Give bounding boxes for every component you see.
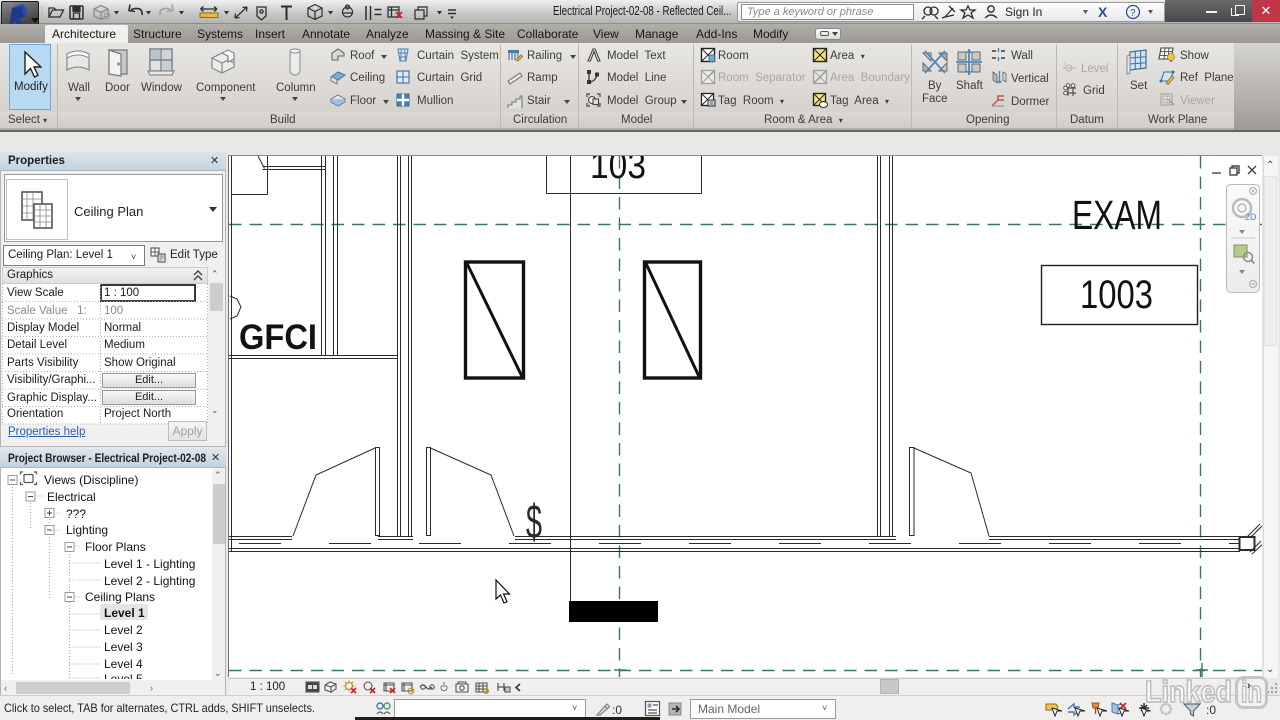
svg-text:?: ? (1130, 8, 1136, 19)
svg-text:$: $ (526, 496, 542, 549)
svg-text:103: 103 (590, 156, 646, 187)
svg-text:in: in (1241, 676, 1262, 709)
svg-text:GFCI: GFCI (239, 318, 317, 357)
svg-text:2D: 2D (1245, 212, 1257, 222)
svg-text:Sign In: Sign In (1005, 5, 1042, 19)
svg-text:1: 1 (1063, 62, 1066, 68)
svg-text:EXAM: EXAM (1072, 192, 1162, 238)
svg-text:X: X (1098, 4, 1108, 20)
svg-text:Linked: Linked (1145, 676, 1232, 709)
svg-text:1003: 1003 (1080, 273, 1153, 317)
